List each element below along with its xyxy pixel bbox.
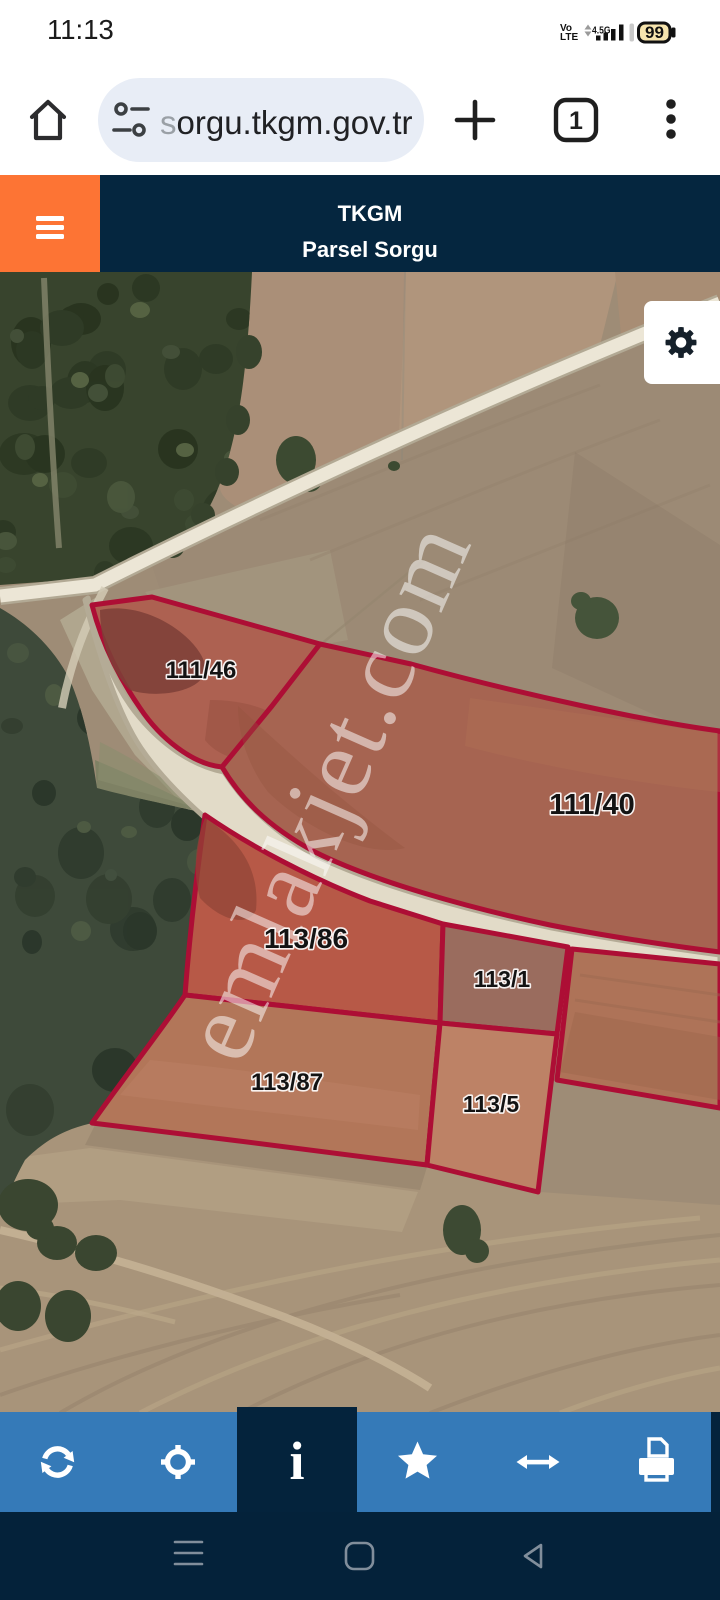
svg-text:113/86: 113/86 xyxy=(264,923,348,954)
svg-text:111/46: 111/46 xyxy=(166,657,237,684)
svg-text:1: 1 xyxy=(569,107,583,135)
svg-text:113/1: 113/1 xyxy=(474,966,530,992)
svg-text:113/87: 113/87 xyxy=(251,1069,323,1096)
svg-text:113/5: 113/5 xyxy=(463,1091,519,1117)
svg-text:LTE: LTE xyxy=(560,32,578,43)
svg-text:99: 99 xyxy=(645,23,664,42)
svg-text:111/40: 111/40 xyxy=(549,789,635,821)
svg-text:i: i xyxy=(289,1431,304,1491)
